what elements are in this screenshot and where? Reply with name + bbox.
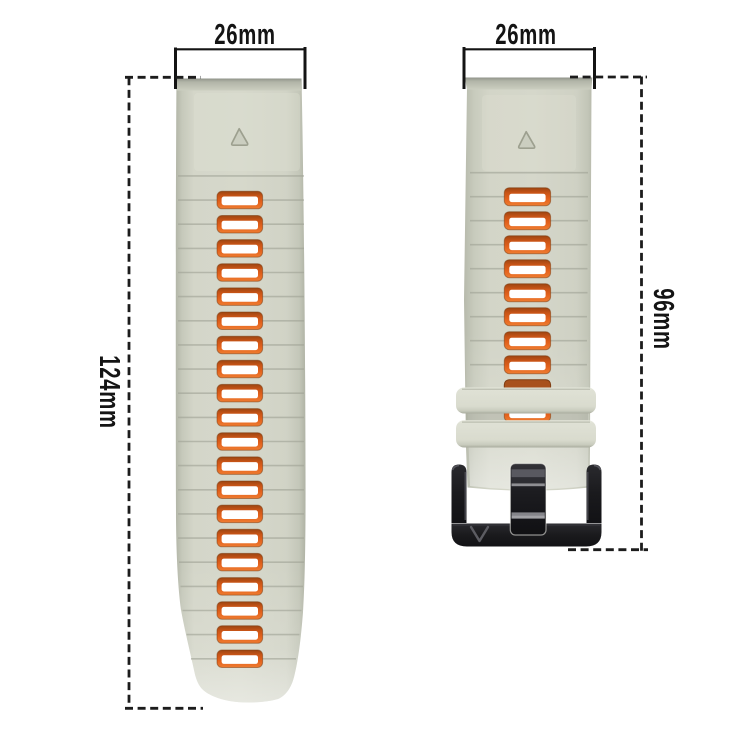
svg-text:26mm: 26mm: [214, 19, 275, 51]
svg-text:26mm: 26mm: [495, 19, 556, 51]
svg-text:124mm: 124mm: [93, 355, 125, 428]
svg-text:96mm: 96mm: [647, 288, 679, 349]
